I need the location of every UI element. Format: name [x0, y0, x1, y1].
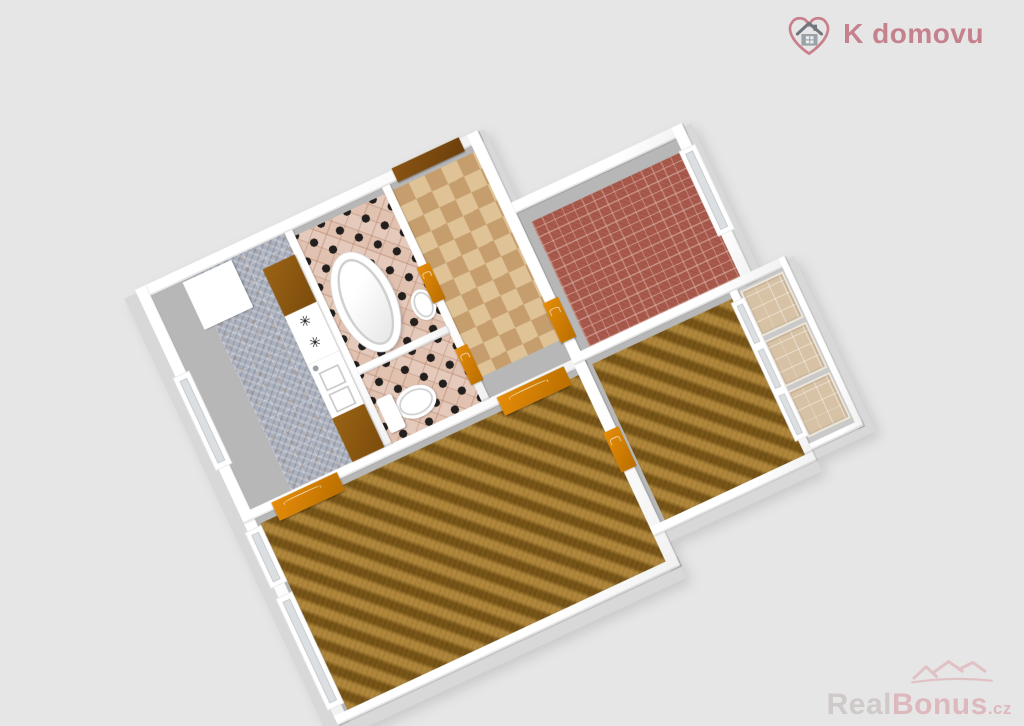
watermark: RealBonus.cz: [827, 659, 1012, 720]
page-background: ✳ ✳ K domovu: [0, 0, 1024, 726]
heart-with-house-icon: [784, 10, 834, 58]
watermark-text: RealBonus.cz: [827, 690, 1012, 720]
floor-plan: ✳ ✳: [135, 31, 904, 726]
brand-logo-text: K domovu: [843, 18, 984, 50]
watermark-real: Real: [827, 688, 892, 721]
rooftops-icon: [910, 659, 994, 685]
brand-logo: K domovu: [784, 10, 984, 58]
watermark-tld: .cz: [988, 699, 1012, 718]
watermark-bonus: Bonus: [892, 688, 988, 721]
faucet-icon: [312, 364, 320, 372]
